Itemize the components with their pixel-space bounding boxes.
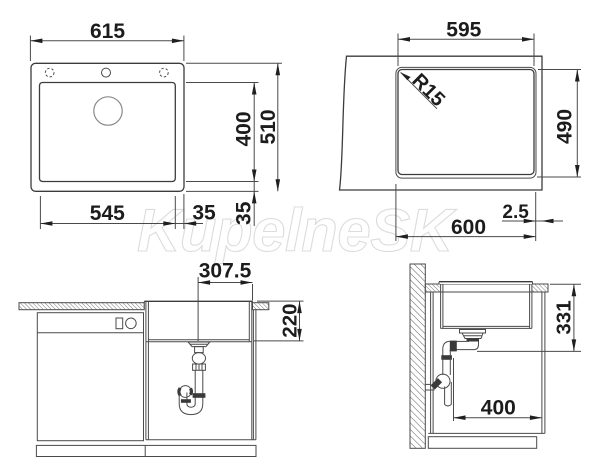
- svg-text:KupelneSK: KupelneSK: [137, 197, 457, 264]
- svg-text:490: 490: [554, 109, 577, 144]
- svg-text:600: 600: [451, 216, 486, 239]
- svg-text:331: 331: [553, 300, 576, 334]
- svg-text:35: 35: [233, 201, 256, 225]
- svg-text:400: 400: [233, 111, 256, 146]
- svg-text:545: 545: [90, 202, 125, 225]
- svg-text:220: 220: [279, 303, 302, 337]
- svg-text:400: 400: [481, 397, 516, 420]
- svg-text:510: 510: [257, 109, 280, 144]
- svg-text:2.5: 2.5: [502, 202, 529, 223]
- svg-text:595: 595: [446, 19, 481, 42]
- svg-text:35: 35: [192, 202, 216, 225]
- svg-text:615: 615: [90, 20, 125, 43]
- svg-text:307.5: 307.5: [199, 260, 252, 283]
